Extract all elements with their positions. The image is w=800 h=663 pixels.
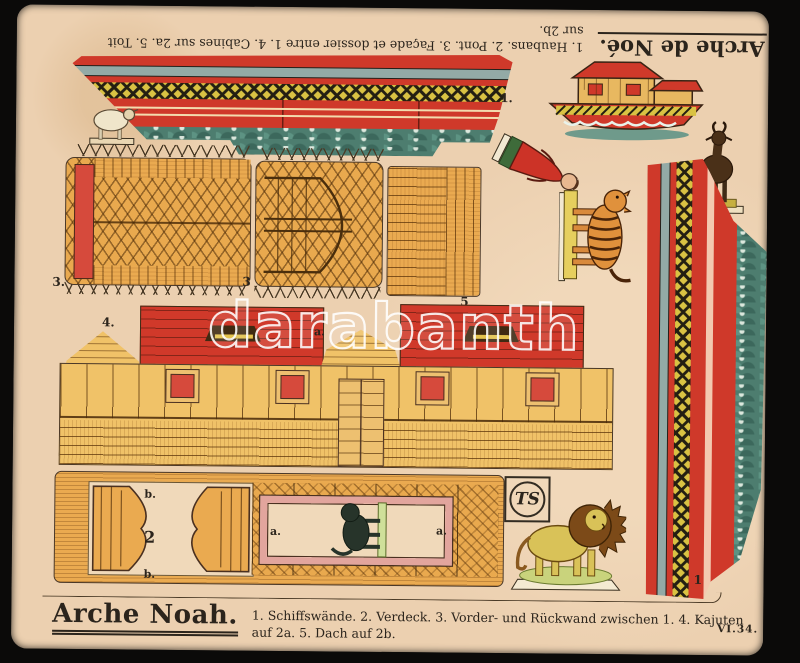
tiger-icon (558, 185, 649, 286)
cabin-window (525, 372, 559, 406)
deck-bow-shapes-icon (89, 482, 254, 576)
skylight-hatch (205, 325, 261, 342)
side-piece (643, 158, 767, 599)
sheep-icon (86, 99, 142, 148)
roof-planks-vertical (445, 168, 480, 296)
hull-label: 1. (500, 91, 513, 105)
cabin-wall (59, 363, 614, 470)
cabin-roof-left (140, 306, 325, 368)
wall-panel-left-piece (64, 157, 251, 287)
panel-top-planks (94, 158, 250, 178)
cabin-window (165, 369, 199, 403)
panel-red-strip (73, 164, 94, 279)
deck-a-left-label: a. (270, 525, 281, 538)
cabin-label: 4. (102, 315, 115, 329)
wall-panel-right-piece (254, 161, 383, 288)
panel-left-label: 3. (52, 275, 65, 289)
zigzag-edge (262, 148, 384, 161)
cabin-window (415, 371, 449, 405)
cabin-window (275, 370, 309, 404)
german-instructions: 1. Schiffswände. 2. Verdeck. 3. Vorder- … (252, 601, 744, 646)
deck-a-right-label: a. (436, 524, 447, 537)
deck-animal-panel (260, 496, 453, 566)
french-instructions: 1. Haubans. 2. Pont. 3. Façade et dossie… (108, 18, 584, 60)
deck-center-field (88, 481, 255, 577)
lion-figure (507, 483, 626, 596)
cabin-piece (57, 297, 617, 476)
lion-icon (507, 483, 626, 596)
plate-number: VI.34. (717, 623, 758, 635)
deck-label: 2 (144, 528, 155, 547)
cabin-roof-right (400, 304, 585, 370)
bow-curve-icon (255, 162, 384, 289)
paper-model-sheet: Arche de Noé. 1. Haubans. 2. Pont. 3. Fa… (11, 4, 769, 655)
deck-b-bottom-label: b. (144, 568, 156, 581)
french-header-rotated: Arche de Noé. 1. Haubans. 2. Pont. 3. Fa… (27, 9, 767, 62)
cabin-door (338, 379, 385, 467)
cabin-wall-siding (60, 420, 612, 469)
dark-lion-icon (326, 496, 391, 563)
german-footer: Arche Noah. 1. Schiffswände. 2. Verdeck.… (52, 599, 758, 647)
side-label: 1 (694, 573, 702, 587)
panel-right-label: 3 (242, 275, 250, 289)
zigzag-edge (78, 144, 250, 158)
panel-bottom-planks (93, 265, 249, 285)
french-title: Arche de Noé. (597, 32, 767, 62)
sheep-figure (86, 99, 142, 148)
german-title: Arche Noah. (52, 599, 238, 634)
deck-piece: b. 2 b. a. a. (51, 463, 506, 595)
panel-midline (94, 221, 250, 224)
skylight-hatch (463, 326, 519, 343)
roof-planks-horizontal (387, 167, 446, 296)
tiger-figure (550, 182, 657, 289)
roof-piece (386, 166, 481, 297)
cabin-gable-label: a. (314, 325, 325, 338)
deck-b-top-label: b. (144, 488, 156, 501)
side-waves-band (733, 159, 767, 599)
